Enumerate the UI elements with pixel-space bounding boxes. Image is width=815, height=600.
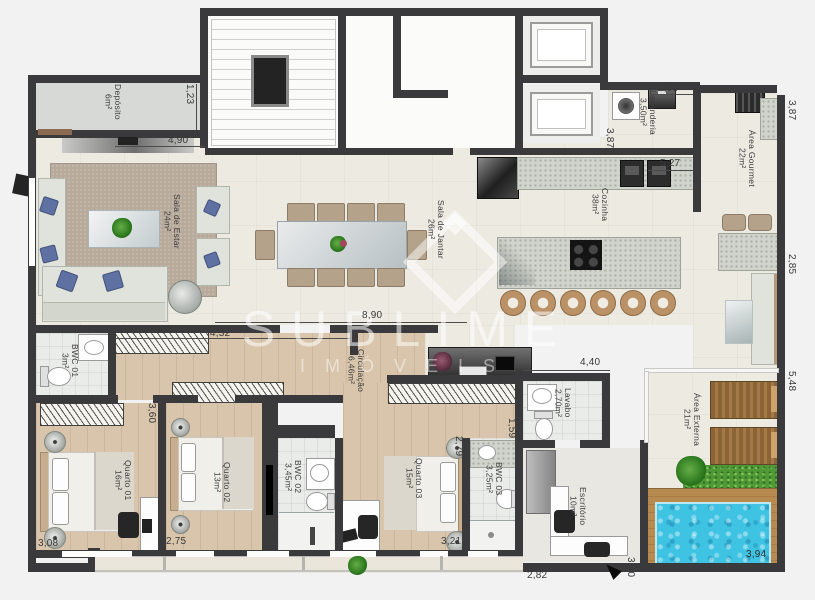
- dim-label: 3,60: [146, 403, 157, 423]
- dim-label: 2,85: [786, 254, 797, 274]
- gourmet-stool: [748, 214, 772, 231]
- dining-chair: [255, 230, 275, 260]
- window: [62, 551, 132, 557]
- wall: [515, 373, 610, 381]
- glass-wall-h: [644, 368, 779, 373]
- wall: [28, 325, 118, 333]
- elevator-1: [523, 15, 600, 75]
- dim-label: 8,90: [362, 310, 382, 321]
- sun-lounger: [710, 427, 780, 465]
- room-label-sala-estar: Sala de Estar24m²: [162, 194, 181, 249]
- room-label-area-externa: Área Externa21m²: [682, 393, 701, 446]
- dim-label: 2,79: [453, 436, 464, 456]
- window: [468, 551, 498, 557]
- dim-label: 2,03: [658, 83, 678, 94]
- dim-label: 5,27: [660, 158, 680, 169]
- room-area: 13m²: [212, 462, 222, 503]
- wall: [278, 425, 335, 438]
- dim-label: 4,32: [210, 328, 230, 339]
- room-area: 38m²: [590, 188, 600, 221]
- room-label-quarto01: Quarto 0116m²: [113, 460, 132, 501]
- room-area: 10m²: [568, 487, 578, 525]
- room-name: Quarto 01: [123, 460, 133, 501]
- dining-chair: [287, 203, 315, 222]
- room-label-lavabo: Lavabo2,70m²: [553, 388, 572, 418]
- wall: [335, 438, 343, 558]
- room-area: 3,50m²: [638, 90, 648, 135]
- room-area: 21m²: [682, 393, 692, 446]
- nightstand-lamp: [171, 515, 190, 534]
- room-area: 24m²: [162, 194, 172, 249]
- room-name: Quarto 02: [222, 462, 232, 503]
- cooktop-icon: [570, 240, 602, 270]
- room-name: BWC 02: [293, 460, 303, 493]
- room-name: Cozinha: [600, 188, 610, 221]
- room-label-escritorio: Escritório10m²: [568, 487, 587, 525]
- elevator-frame: [530, 22, 593, 68]
- dim-label: 2,87: [263, 522, 274, 542]
- wall-top: [200, 8, 608, 16]
- floor-elevator-hall: [346, 15, 515, 148]
- room-label-circulacao: Circulação6,46m²: [346, 349, 365, 392]
- toilet-tank: [327, 493, 335, 510]
- room-area: 2,70m²: [553, 388, 563, 418]
- elevator-2: [523, 85, 600, 143]
- room-label-bwc01: BWC 013m²: [60, 344, 79, 377]
- dim-label: 2,82: [527, 570, 547, 581]
- window: [247, 551, 289, 557]
- room-label-quarto03: Quarto 0315m²: [404, 458, 423, 499]
- room-name: Área Externa: [692, 393, 702, 446]
- dim-label: 3,87: [786, 100, 797, 120]
- wall: [158, 403, 166, 558]
- dim-label: 3,21: [441, 536, 461, 547]
- room-name: BWC 03: [494, 462, 504, 495]
- sink-basin: [532, 388, 552, 404]
- dim-label: 3,50: [625, 557, 636, 577]
- glass-wall-v: [644, 371, 649, 443]
- dim-label: 4,90: [168, 135, 188, 146]
- room-area: 6m²: [103, 84, 113, 120]
- wardrobe: [115, 331, 209, 354]
- gourmet-sofa: [751, 273, 779, 365]
- elevator-cab: [537, 99, 586, 129]
- pillow: [203, 251, 221, 269]
- elevator-cab: [537, 29, 586, 61]
- bed-pillow: [181, 473, 196, 502]
- wall: [515, 381, 523, 565]
- room-area: 3,25m²: [484, 462, 494, 495]
- floor-plan: 4,90 1,23 4,32 8,90 2,03 5,27 3,87 3,87 …: [0, 0, 815, 600]
- armchair: [196, 238, 230, 286]
- wall: [235, 395, 343, 403]
- room-label-deposito: Depósito6m²: [103, 84, 122, 120]
- room-label-cozinha: Cozinha38m²: [590, 188, 609, 221]
- dining-chair: [317, 203, 345, 222]
- wardrobe: [40, 403, 124, 426]
- dim-line: [196, 84, 197, 130]
- room-label-quarto02: Quarto 0213m²: [212, 462, 231, 503]
- dining-chair: [347, 203, 375, 222]
- room-label-sala-jantar: Sala de Jantar26m²: [426, 200, 445, 259]
- dining-chair: [347, 268, 375, 287]
- dining-chair: [317, 268, 345, 287]
- bar-stool: [650, 290, 676, 316]
- wall: [28, 395, 118, 403]
- room-area: 22m²: [737, 130, 747, 187]
- wall: [28, 75, 208, 83]
- wall: [600, 8, 608, 88]
- room-name: Lavabo: [563, 388, 573, 418]
- room-name: Depósito: [113, 84, 123, 120]
- nightstand-lamp: [44, 431, 66, 453]
- bar-stool: [530, 290, 556, 316]
- wall: [602, 373, 610, 448]
- wall: [470, 148, 695, 155]
- wall-right-outer: [777, 95, 785, 572]
- toilet-bowl: [535, 418, 553, 440]
- desk-monitor: [142, 519, 152, 533]
- room-label-bwc03: BWC 033,25m²: [484, 462, 503, 495]
- room-area: 26m²: [426, 200, 436, 259]
- tv-icon: [495, 356, 515, 371]
- sink-icon: [620, 160, 644, 187]
- elevator-frame: [530, 92, 593, 136]
- room-area: 16m²: [113, 460, 123, 501]
- bar-stool: [500, 290, 526, 316]
- dim-line: [648, 170, 693, 171]
- door-threshold: [118, 137, 138, 145]
- tv-icon: [266, 465, 273, 515]
- wall: [153, 395, 198, 403]
- dim-label: 5,48: [786, 371, 797, 391]
- sofa-back: [43, 302, 165, 320]
- dim-label: 3,94: [746, 549, 766, 560]
- wall: [205, 148, 453, 155]
- wall: [580, 440, 610, 448]
- wall: [358, 325, 438, 333]
- bar-stool: [590, 290, 616, 316]
- room-area: 6,46m²: [346, 349, 356, 392]
- bar-stool: [560, 290, 586, 316]
- dim-line: [523, 370, 610, 371]
- room-name: Quarto 03: [414, 458, 424, 499]
- shower-wand-icon: [310, 527, 315, 545]
- dim-label: 4,40: [580, 357, 600, 368]
- room-name: Área Gourmet: [747, 130, 757, 187]
- bed-pillow: [52, 492, 69, 525]
- nightstand-lamp: [171, 418, 190, 437]
- dim-label: 3,87: [604, 128, 615, 148]
- wall: [600, 82, 700, 90]
- bed-pillow: [181, 443, 196, 472]
- office-chair: [584, 542, 610, 557]
- wall: [393, 8, 401, 98]
- dim-line: [215, 322, 467, 323]
- room-area: 15m²: [404, 458, 414, 499]
- bar-stool: [620, 290, 646, 316]
- room-area: 3m²: [60, 344, 70, 377]
- room-label-bwc02: BWC 023,45m²: [283, 460, 302, 493]
- wall: [515, 8, 523, 153]
- wall: [700, 85, 777, 93]
- wall: [108, 333, 116, 403]
- bed-pillow: [440, 493, 456, 523]
- entry-door-leaf: [38, 129, 72, 135]
- room-name: Lavanderia: [648, 90, 658, 135]
- sun-lounger: [710, 381, 780, 419]
- room-label-area-gourmet: Área Gourmet22m²: [737, 130, 756, 187]
- room-name: Sala de Estar: [172, 194, 182, 249]
- room-label-lavanderia: Lavanderia3,50m²: [638, 90, 657, 135]
- dining-chair: [287, 268, 315, 287]
- shower-area: [279, 512, 334, 550]
- sink-basin: [478, 445, 496, 460]
- desk-chair: [358, 515, 378, 539]
- window: [420, 551, 448, 557]
- dim-label: 2,75: [166, 536, 186, 547]
- stair-core: [251, 55, 289, 107]
- shower-drain-icon: [488, 532, 494, 538]
- dining-chair: [377, 268, 405, 287]
- dim-label: 3,08: [38, 538, 58, 549]
- wall: [338, 8, 346, 150]
- wall: [200, 8, 208, 148]
- wall: [640, 440, 648, 572]
- centerpiece-flowers: [340, 240, 347, 247]
- window: [176, 551, 214, 557]
- wall: [515, 440, 555, 448]
- wall: [115, 325, 280, 333]
- gourmet-stool: [722, 214, 746, 231]
- room-name: Escritório: [578, 487, 588, 525]
- wall-bottom-left: [28, 563, 95, 572]
- sink-basin: [84, 340, 104, 355]
- dim-label: 1,59: [506, 418, 517, 438]
- sink-basin: [310, 464, 329, 482]
- wall-left-outer: [28, 75, 36, 572]
- pouf: [168, 280, 202, 314]
- flower-vase-icon: [433, 352, 452, 371]
- dim-label: 1,23: [184, 84, 195, 104]
- desk-chair: [118, 512, 139, 538]
- bed-pillow: [440, 462, 456, 492]
- balcony-rail: [95, 570, 523, 572]
- room-name: Sala de Jantar: [436, 200, 446, 259]
- room-name: Circulação: [356, 349, 366, 392]
- room-area: 3,45m²: [283, 460, 293, 493]
- wall: [693, 148, 701, 212]
- wall: [393, 90, 448, 98]
- armchair: [196, 186, 230, 234]
- pillow: [203, 199, 221, 217]
- window-left: [29, 178, 35, 266]
- bed-pillow: [52, 458, 69, 491]
- wall: [523, 75, 608, 83]
- dining-chair: [377, 203, 405, 222]
- wall-bottom-right: [523, 563, 785, 572]
- gourmet-rug: [725, 300, 753, 344]
- dim-line: [115, 338, 350, 339]
- toilet-bowl: [306, 492, 328, 511]
- dim-label: 3,45: [497, 376, 517, 387]
- fridge: [477, 157, 519, 199]
- dim-line: [115, 146, 205, 147]
- room-name: BWC 01: [70, 344, 80, 377]
- gourmet-bar-counter: [718, 233, 779, 271]
- washer-icon: [612, 92, 640, 120]
